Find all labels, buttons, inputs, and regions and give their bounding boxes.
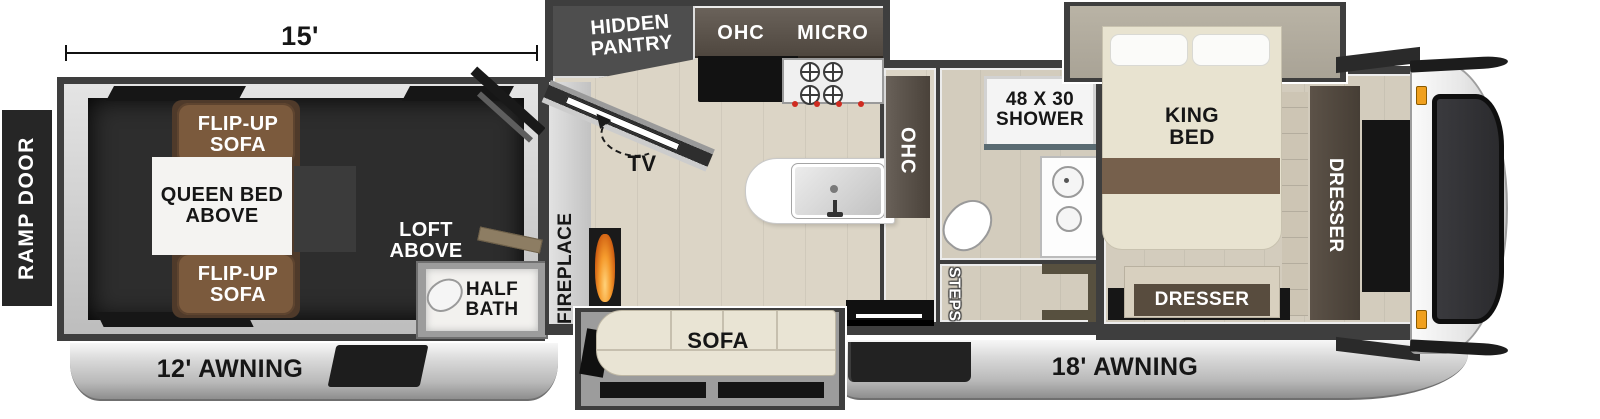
garage-window-top-left — [106, 86, 246, 101]
hall-ohc-label: OHC — [888, 118, 926, 184]
hidden-pantry-label: HIDDEN PANTRY — [570, 7, 692, 65]
island-sink — [792, 164, 884, 218]
bed-runner — [1102, 158, 1280, 194]
front-window — [1432, 94, 1504, 324]
burner-icon — [823, 62, 843, 82]
sofa-label: SOFA — [668, 326, 768, 356]
tv-label: TV — [616, 150, 668, 178]
queen-bed-above-label: QUEEN BED ABOVE — [155, 178, 289, 234]
sink-faucet-base — [827, 212, 843, 217]
dimension-tick-right — [536, 45, 538, 61]
loft-above-label: LOFT ABOVE — [378, 218, 474, 264]
dimension-label: 15' — [250, 22, 350, 50]
flip-up-sofa-bottom-label: FLIP-UP SOFA — [178, 262, 298, 308]
storage-door — [328, 345, 429, 387]
range-knob — [814, 101, 820, 107]
vanity-mirror — [1056, 206, 1082, 232]
bed-lift-platform — [294, 166, 356, 252]
entry-mat — [846, 300, 934, 326]
half-bath-label: HALF BATH — [452, 278, 532, 322]
shower-label: 48 X 30 SHOWER — [990, 86, 1090, 134]
rv-floorplan: 12' AWNING 18' AWNING 15' RAMP DOOR FLIP… — [0, 0, 1600, 419]
range-burners — [800, 62, 843, 105]
dimension-line — [65, 52, 538, 54]
ramp-door-label: RAMP DOOR — [6, 128, 48, 288]
sofa-slide-window-bottom-left — [600, 382, 706, 398]
entry-steps-exterior — [848, 342, 971, 382]
step-trim-bottom — [1042, 310, 1098, 320]
dresser-wardrobe-label: DRESSER — [1316, 150, 1354, 260]
kitchen-ohc-label: OHC — [706, 18, 776, 48]
front-cap-trim-top — [1410, 55, 1508, 72]
dresser-foot-label: DRESSER — [1140, 288, 1264, 312]
sofa-slide-window-bottom-right — [718, 382, 824, 398]
sink-drain — [830, 185, 838, 193]
burner-icon — [800, 62, 820, 82]
marker-light-bottom — [1416, 310, 1427, 329]
steps-label: STEPS — [938, 266, 968, 322]
awning-right-label: 18' AWNING — [1030, 350, 1220, 384]
vanity-sink-drain — [1064, 178, 1069, 183]
awning-left-label: 12' AWNING — [140, 352, 320, 386]
king-bed-label: KING BED — [1140, 102, 1244, 152]
marker-light-top — [1416, 86, 1427, 105]
bedroom-wardrobe — [1282, 92, 1308, 316]
range-knob — [858, 101, 864, 107]
pillow-right — [1192, 34, 1270, 66]
shower-glass — [984, 144, 1096, 150]
micro-label: MICRO — [788, 18, 878, 48]
range-knob — [836, 101, 842, 107]
dimension-tick-left — [65, 45, 67, 61]
flip-up-sofa-top-label: FLIP-UP SOFA — [178, 112, 298, 158]
fireplace-flame — [595, 234, 615, 302]
entry-mat-stripe — [856, 314, 922, 318]
range-knob — [792, 101, 798, 107]
pillow-left — [1110, 34, 1188, 66]
